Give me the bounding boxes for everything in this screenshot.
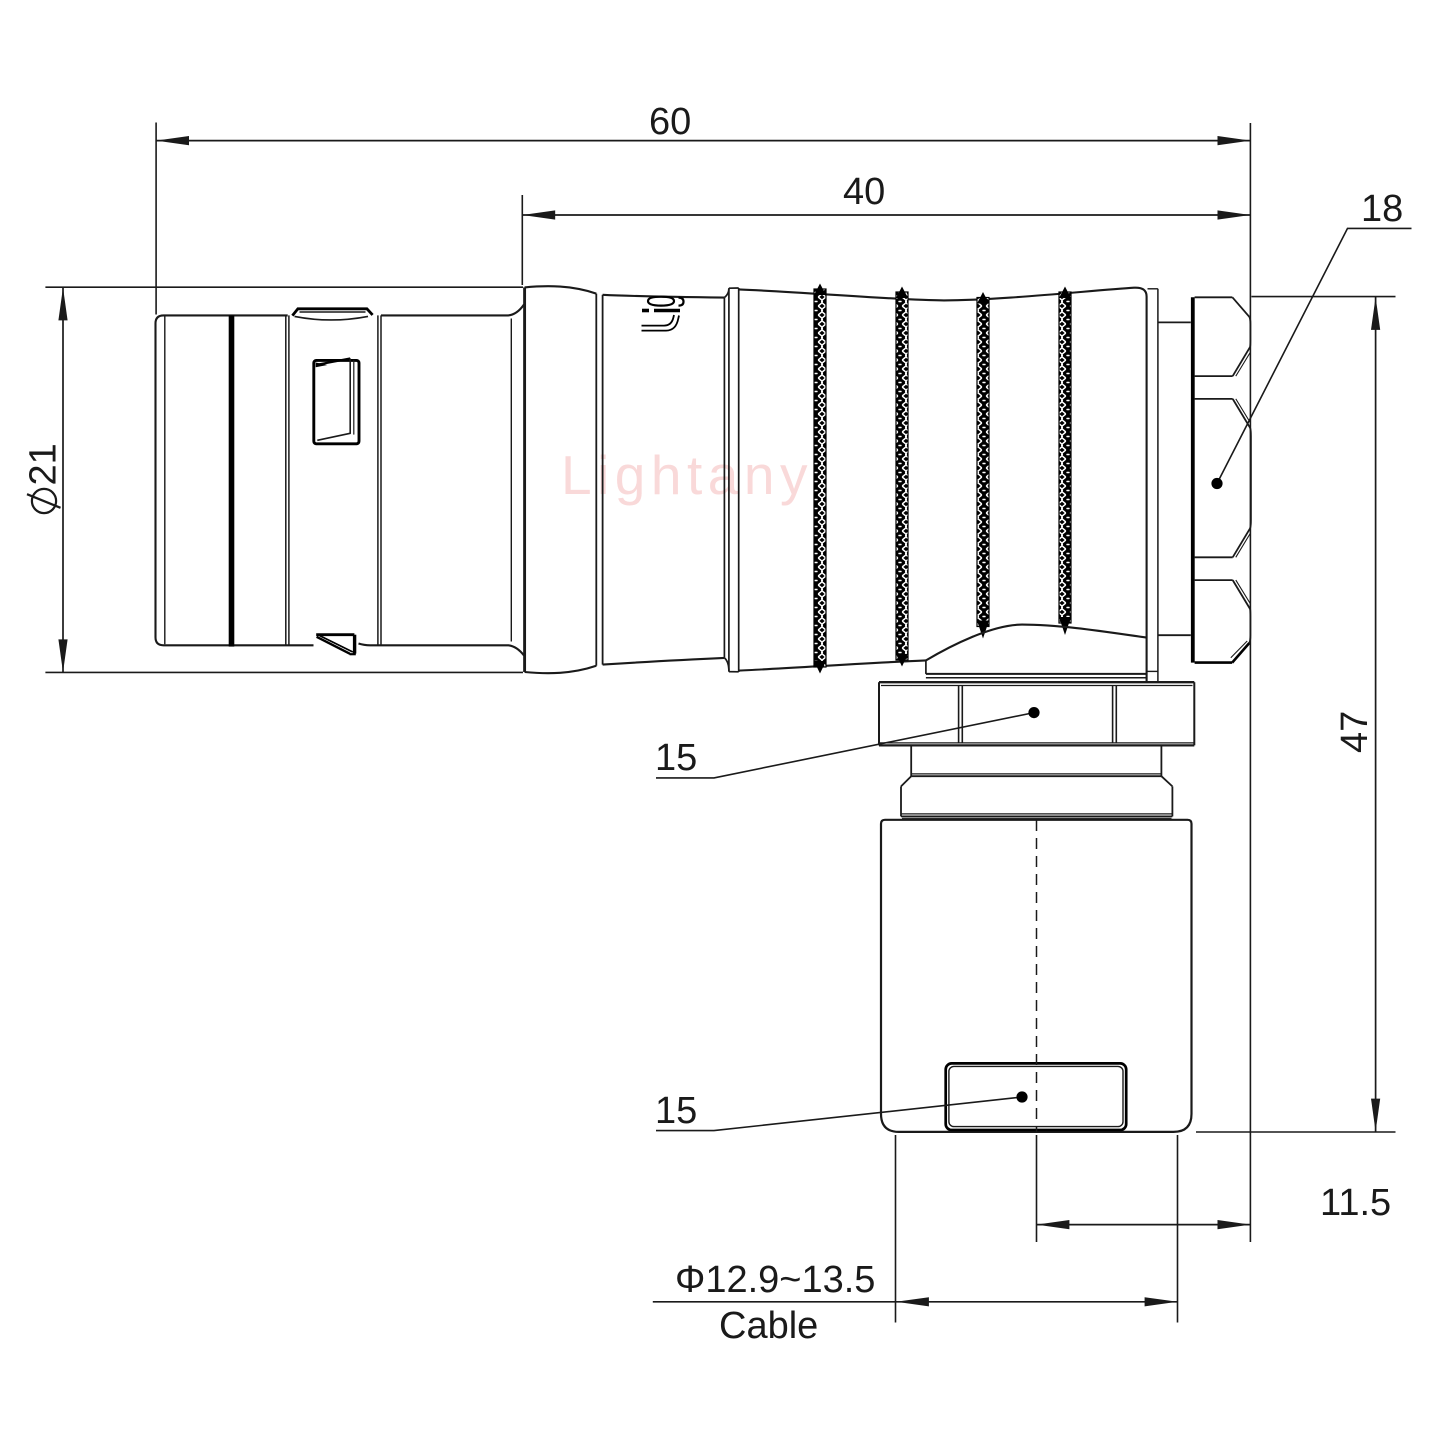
svg-text:11.5: 11.5 — [1320, 1182, 1391, 1224]
svg-text:15: 15 — [655, 1090, 697, 1132]
svg-text:60: 60 — [649, 101, 691, 143]
svg-text:Φ12.9~13.5: Φ12.9~13.5 — [675, 1259, 875, 1301]
svg-text:15: 15 — [655, 737, 697, 779]
svg-text:40: 40 — [843, 171, 885, 213]
svg-text:47: 47 — [1334, 711, 1376, 753]
svg-text:Cable: Cable — [719, 1305, 818, 1347]
svg-text:Lightany: Lightany — [561, 444, 813, 506]
svg-text:18: 18 — [1361, 188, 1403, 230]
svg-text:21: 21 — [23, 443, 65, 485]
